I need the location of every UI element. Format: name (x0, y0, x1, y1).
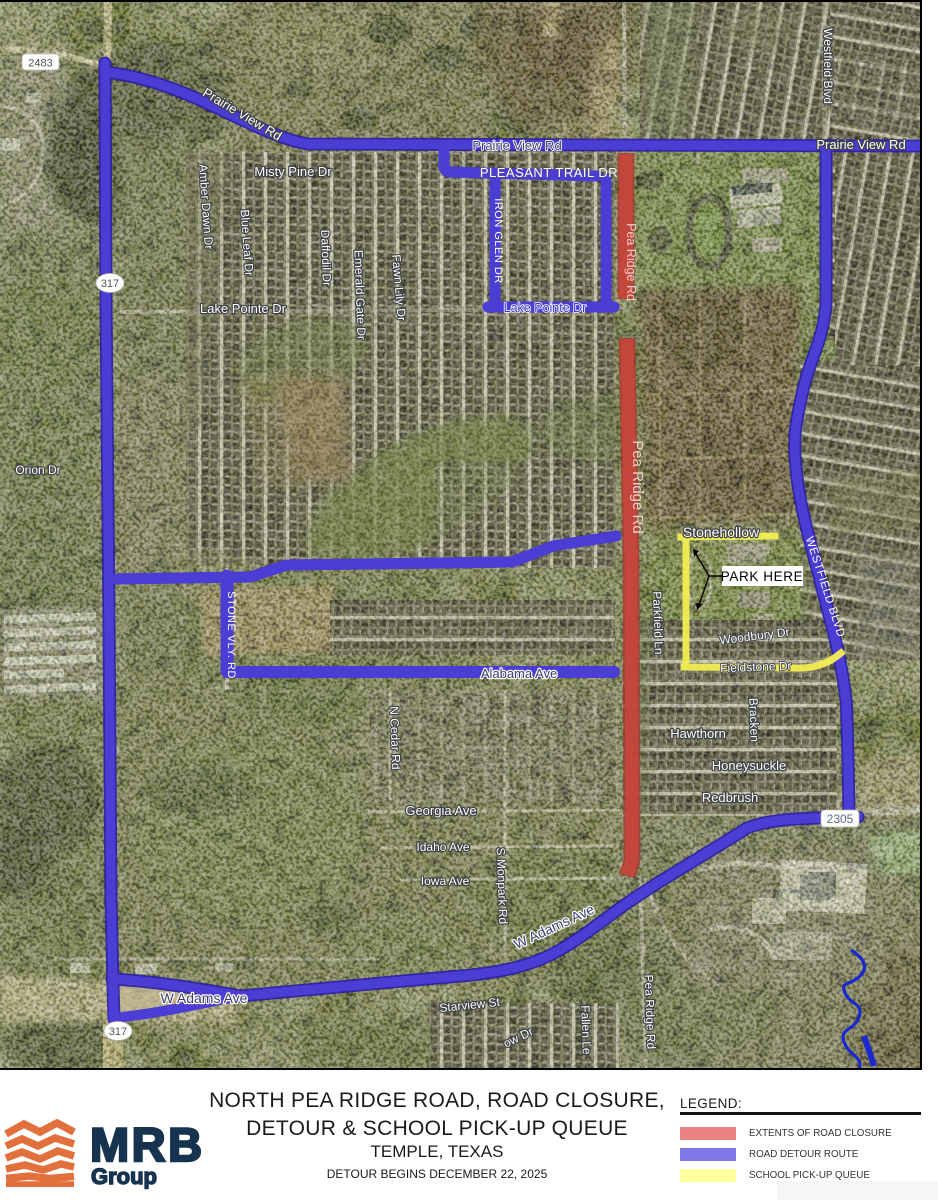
svg-text:Prairie View Rd: Prairie View Rd (472, 138, 561, 153)
svg-text:Prairie View Rd: Prairie View Rd (816, 137, 905, 152)
svg-text:Idaho Ave: Idaho Ave (416, 840, 469, 854)
svg-text:Stonehollow: Stonehollow (683, 524, 760, 540)
svg-text:Georgia Ave: Georgia Ave (405, 803, 476, 818)
svg-text:Hawthorn: Hawthorn (670, 726, 726, 741)
svg-text:Pea Ridge Rd: Pea Ridge Rd (642, 974, 659, 1049)
svg-text:Bracken: Bracken (746, 698, 762, 742)
svg-text:Westfield Blvd: Westfield Blvd (821, 28, 835, 104)
svg-text:317: 317 (101, 278, 119, 290)
svg-text:STONE VLY. RD: STONE VLY. RD (225, 591, 237, 679)
svg-text:Fieldstone Dr: Fieldstone Dr (720, 659, 792, 675)
svg-text:Pea Ridge Rd: Pea Ridge Rd (629, 440, 646, 533)
svg-text:Redbrush: Redbrush (702, 790, 758, 805)
svg-text:W Adams Ave: W Adams Ave (161, 990, 248, 1006)
svg-text:Alabama Ave: Alabama Ave (481, 666, 557, 681)
svg-text:Misty Pine Dr: Misty Pine Dr (254, 164, 332, 179)
svg-text:Orion Dr: Orion Dr (15, 463, 60, 477)
svg-text:Fallen Le: Fallen Le (578, 1005, 594, 1055)
svg-text:PLEASANT TRAIL DR: PLEASANT TRAIL DR (480, 165, 618, 180)
svg-text:N Cedar Rd: N Cedar Rd (387, 706, 403, 770)
svg-text:IRON GLEN DR: IRON GLEN DR (492, 198, 504, 283)
svg-text:Pea Ridge Rd: Pea Ridge Rd (624, 223, 638, 301)
svg-text:Iowa Ave: Iowa Ave (421, 874, 470, 888)
svg-text:Honeysuckle: Honeysuckle (712, 758, 786, 773)
svg-text:2305: 2305 (827, 812, 854, 826)
svg-text:Parkfield Ln: Parkfield Ln (650, 591, 666, 655)
svg-text:S Monpark Rd: S Monpark Rd (494, 847, 511, 924)
svg-text:PARK HERE: PARK HERE (721, 569, 803, 584)
svg-text:Lake Pointe Dr: Lake Pointe Dr (504, 301, 587, 315)
svg-text:317: 317 (109, 1026, 127, 1038)
svg-text:2483: 2483 (28, 58, 52, 70)
svg-text:Lake Pointe Dr: Lake Pointe Dr (200, 301, 287, 316)
svg-text:Daffodil Dr: Daffodil Dr (318, 229, 334, 286)
